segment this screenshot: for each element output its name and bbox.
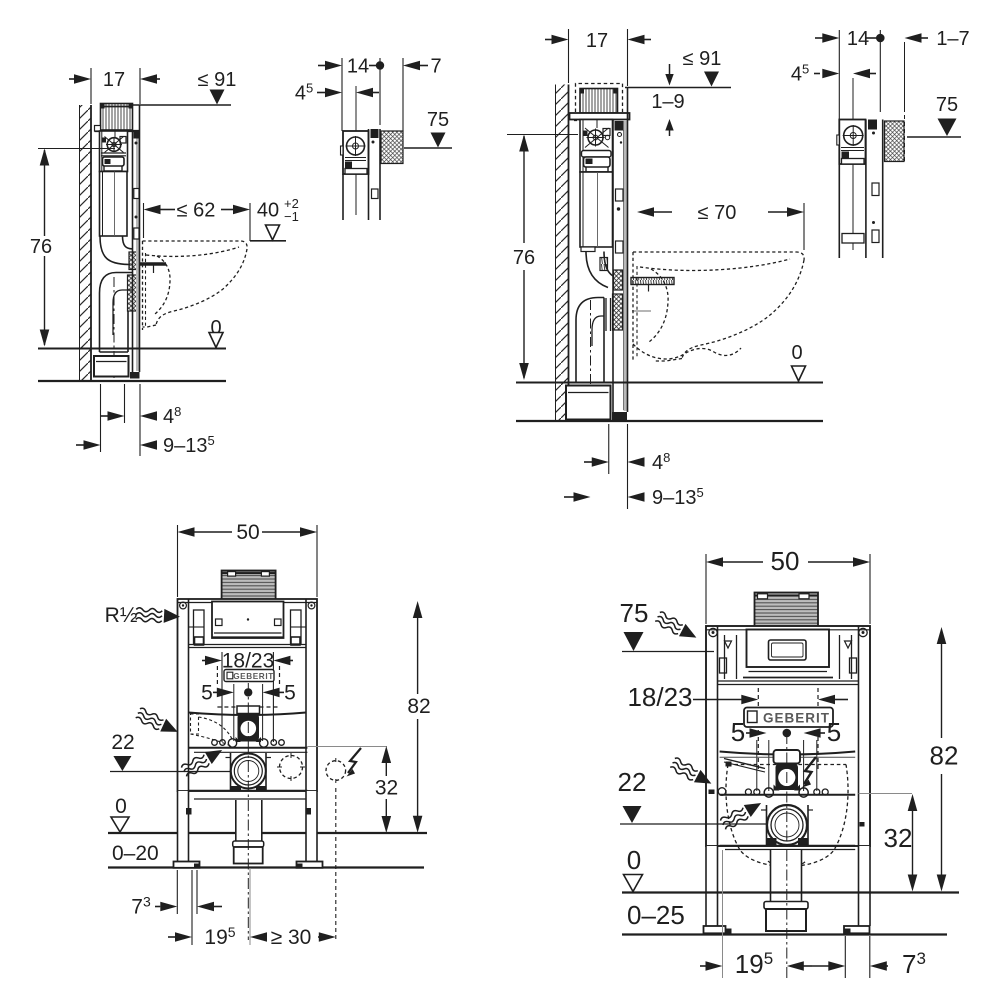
svg-text:0: 0: [627, 845, 641, 875]
svg-text:≤ 91: ≤ 91: [198, 69, 237, 91]
svg-text:−1: −1: [284, 209, 299, 224]
svg-text:5: 5: [284, 682, 296, 705]
svg-text:5: 5: [731, 717, 745, 747]
svg-text:50: 50: [771, 546, 800, 576]
svg-text:0: 0: [115, 795, 127, 818]
svg-text:76: 76: [513, 247, 535, 269]
svg-text:≥ 30: ≥ 30: [271, 926, 312, 949]
svg-text:GEBERIT: GEBERIT: [763, 711, 830, 726]
svg-text:5: 5: [827, 717, 841, 747]
svg-text:32: 32: [884, 823, 913, 853]
svg-text:22: 22: [111, 731, 134, 754]
svg-text:40: 40: [257, 200, 279, 222]
svg-text:GEBERIT: GEBERIT: [233, 672, 274, 681]
svg-text:75: 75: [936, 94, 958, 116]
svg-text:5: 5: [201, 682, 213, 705]
svg-text:R½: R½: [105, 604, 138, 627]
svg-text:1–9: 1–9: [651, 91, 684, 113]
svg-text:0–20: 0–20: [112, 842, 159, 865]
svg-text:14: 14: [347, 56, 369, 78]
svg-text:17: 17: [103, 69, 125, 91]
svg-text:82: 82: [407, 695, 430, 718]
svg-text:14: 14: [847, 28, 869, 50]
svg-text:≤ 91: ≤ 91: [683, 48, 722, 70]
svg-text:32: 32: [375, 777, 398, 800]
svg-text:75: 75: [427, 109, 449, 131]
svg-text:9–135: 9–135: [163, 433, 215, 457]
svg-text:7: 7: [430, 56, 441, 78]
svg-text:9–135: 9–135: [652, 485, 704, 509]
svg-text:0–25: 0–25: [627, 900, 685, 930]
svg-text:82: 82: [930, 741, 959, 771]
svg-text:17: 17: [586, 30, 608, 52]
svg-text:≤ 62: ≤ 62: [177, 200, 216, 222]
svg-text:0: 0: [791, 342, 802, 364]
svg-text:22: 22: [618, 767, 647, 797]
svg-text:18/23: 18/23: [627, 682, 692, 712]
svg-text:1–7: 1–7: [936, 28, 969, 50]
svg-text:50: 50: [236, 521, 259, 544]
svg-text:76: 76: [30, 236, 52, 258]
svg-text:≤ 70: ≤ 70: [698, 202, 737, 224]
svg-text:75: 75: [620, 598, 649, 628]
